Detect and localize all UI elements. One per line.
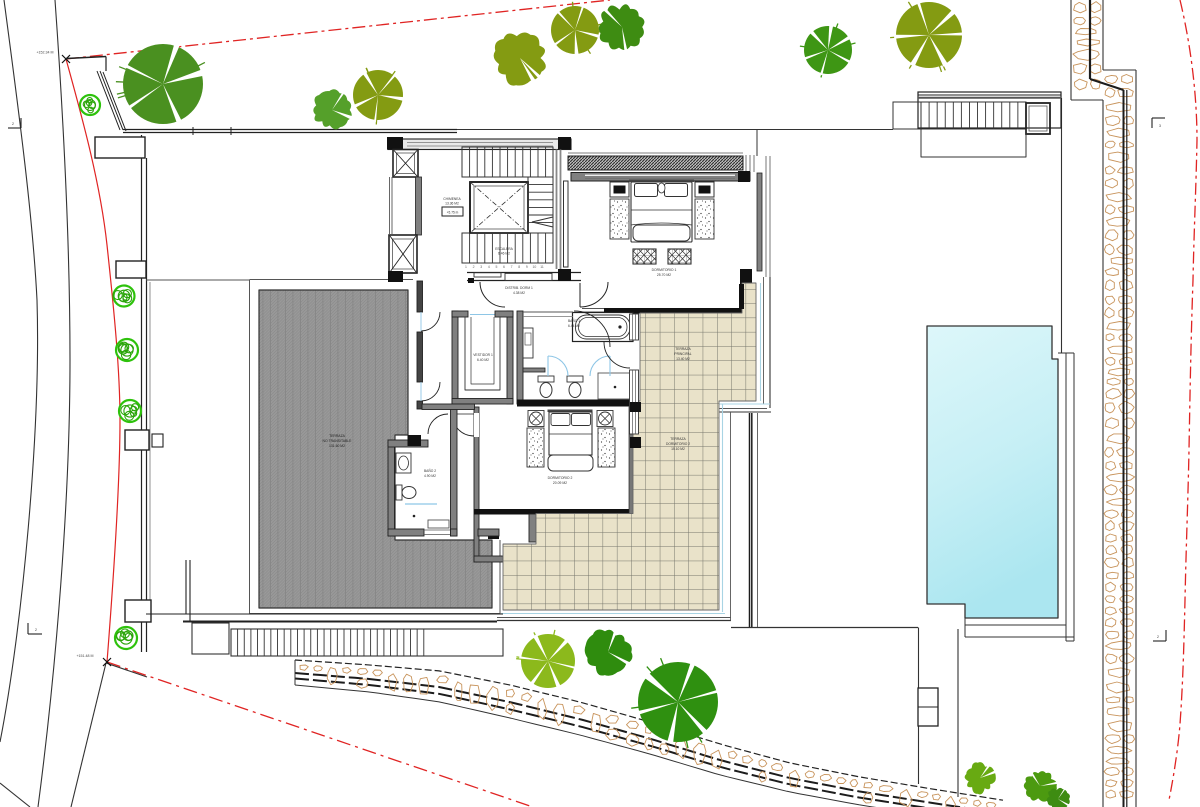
svg-text:DORMITORIO 2: DORMITORIO 2	[666, 442, 690, 446]
svg-text:TERRAZA: TERRAZA	[675, 347, 691, 351]
svg-text:2: 2	[35, 628, 37, 632]
svg-text:3: 3	[1159, 124, 1161, 128]
svg-text:DORMITORIO 2: DORMITORIO 2	[548, 476, 573, 480]
svg-text:2: 2	[1157, 635, 1159, 639]
svg-text:TERRAZA: TERRAZA	[329, 434, 346, 438]
svg-text:25.70 M2: 25.70 M2	[657, 273, 671, 277]
svg-text:PRINCIPAL: PRINCIPAL	[674, 352, 691, 356]
svg-text:VESTIDOR 1: VESTIDOR 1	[473, 353, 493, 357]
svg-text:2: 2	[12, 122, 14, 126]
svg-text:+5.75 m: +5.75 m	[447, 211, 459, 215]
svg-text:BAÑO 2: BAÑO 2	[424, 468, 436, 473]
svg-text:ESCALERA: ESCALERA	[495, 247, 513, 251]
svg-text:4.90 M2: 4.90 M2	[424, 474, 436, 478]
svg-text:15.10 M2: 15.10 M2	[671, 447, 685, 451]
svg-text:+152.34 M: +152.34 M	[36, 51, 53, 55]
svg-text:4.38 M2: 4.38 M2	[513, 291, 525, 295]
svg-text:NO TRANSITABLE: NO TRANSITABLE	[323, 439, 353, 443]
svg-text:CHIMENEA: CHIMENEA	[443, 197, 461, 201]
svg-text:+151.48 M: +151.48 M	[76, 654, 93, 658]
svg-text:BAÑO 1: BAÑO 1	[568, 318, 580, 323]
svg-text:TERRAZA: TERRAZA	[670, 437, 686, 441]
svg-text:13.36 M2: 13.36 M2	[445, 202, 459, 206]
svg-text:6.46 M2: 6.46 M2	[498, 252, 510, 256]
svg-text:DORMITORIO 1: DORMITORIO 1	[652, 268, 677, 272]
svg-text:6.40 M2: 6.40 M2	[477, 358, 489, 362]
svg-text:20.09 M2: 20.09 M2	[553, 481, 567, 485]
svg-text:131.60 M2: 131.60 M2	[329, 444, 345, 448]
svg-text:6.44 M2: 6.44 M2	[568, 324, 580, 328]
svg-text:13.40 M2: 13.40 M2	[676, 357, 690, 361]
svg-text:DISTRIB. DORM 1: DISTRIB. DORM 1	[505, 286, 533, 290]
